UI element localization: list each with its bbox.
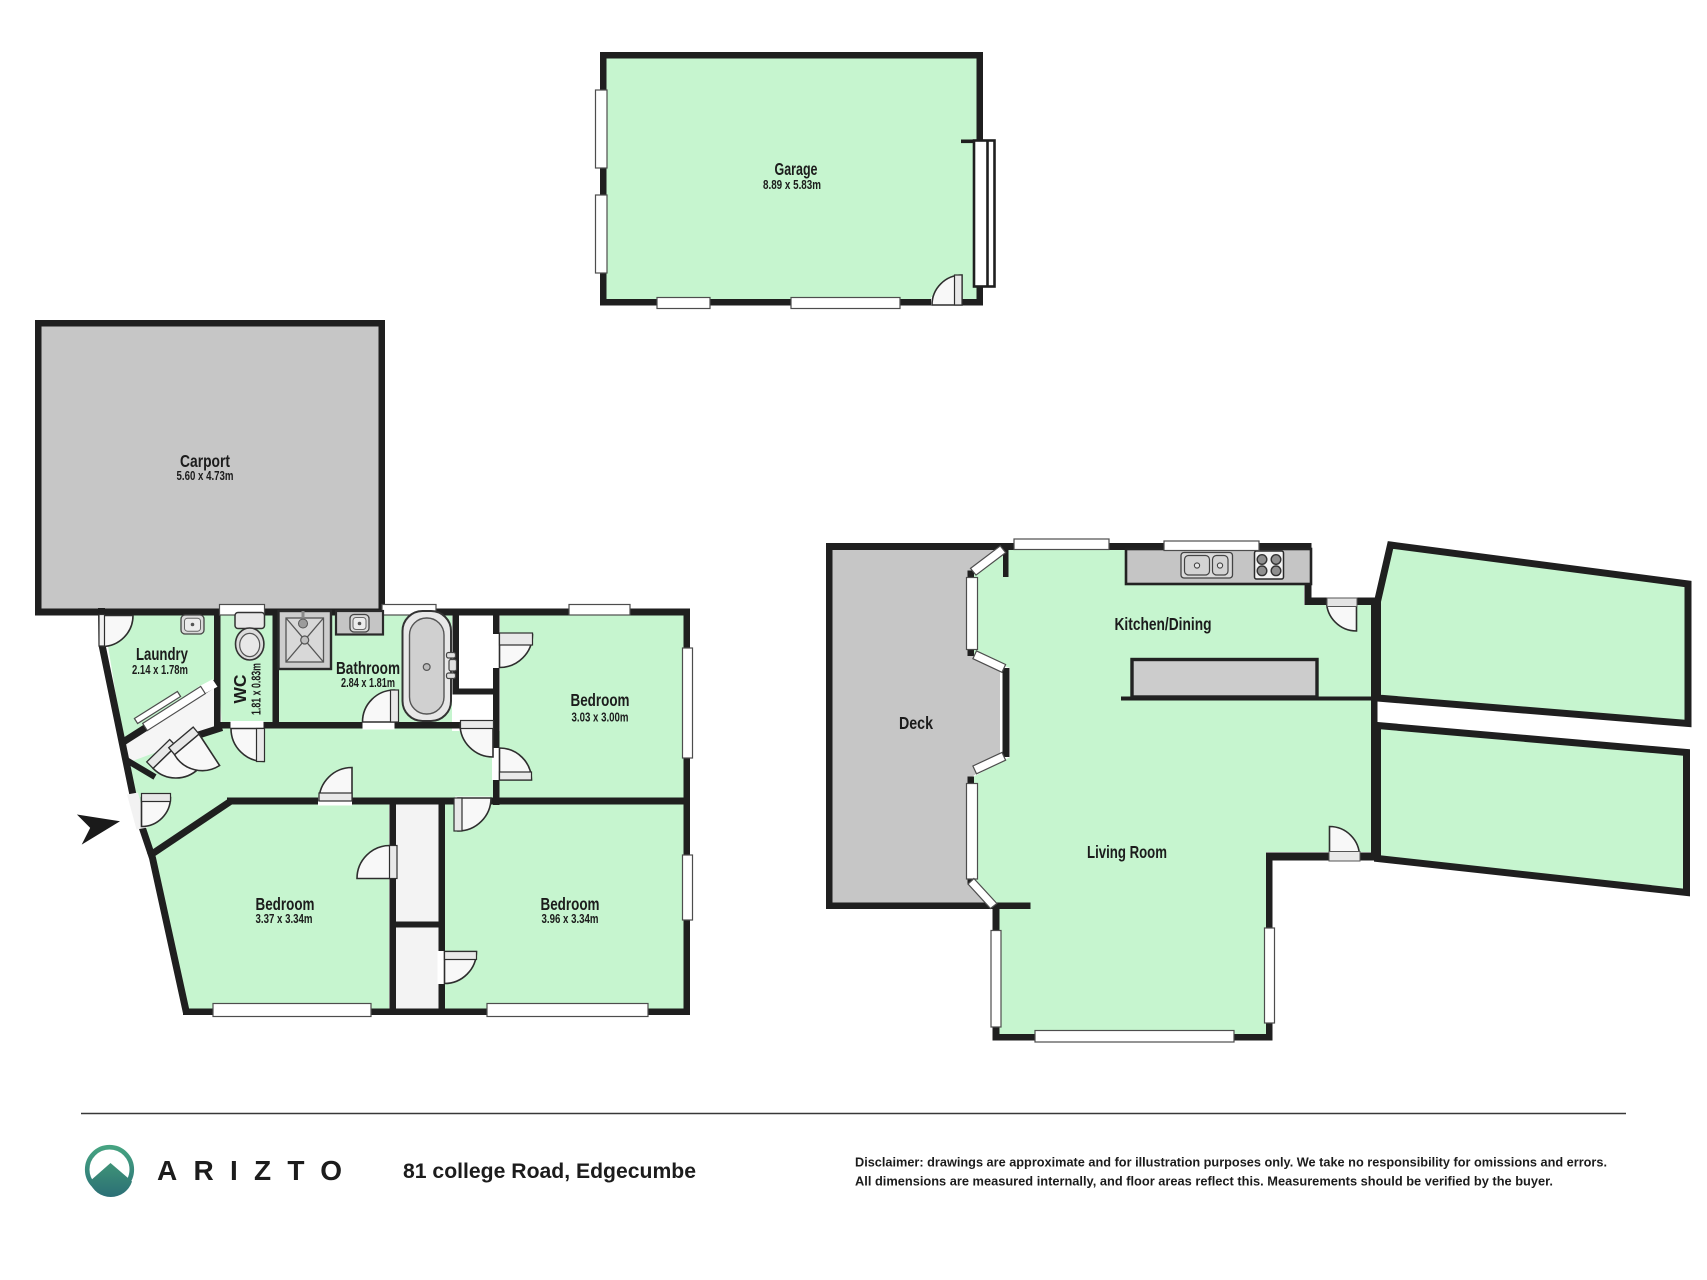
svg-text:2.14 x 1.78m: 2.14 x 1.78m bbox=[132, 662, 188, 677]
svg-text:81 college Road, Edgecumbe: 81 college Road, Edgecumbe bbox=[403, 1160, 696, 1183]
svg-text:3.96 x 3.34m: 3.96 x 3.34m bbox=[542, 911, 599, 926]
svg-text:Disclaimer: drawings are appro: Disclaimer: drawings are approximate and… bbox=[855, 1155, 1607, 1170]
svg-text:5.60 x 4.73m: 5.60 x 4.73m bbox=[177, 468, 234, 483]
svg-text:8.89 x 5.83m: 8.89 x 5.83m bbox=[763, 177, 821, 192]
svg-text:Living Room: Living Room bbox=[1087, 842, 1167, 862]
svg-text:3.37 x 3.34m: 3.37 x 3.34m bbox=[256, 911, 313, 926]
svg-text:Laundry: Laundry bbox=[136, 644, 188, 664]
svg-text:All dimensions are measured in: All dimensions are measured internally, … bbox=[855, 1174, 1553, 1189]
svg-text:Bedroom: Bedroom bbox=[571, 690, 630, 710]
svg-text:2.84 x 1.81m: 2.84 x 1.81m bbox=[341, 675, 395, 690]
svg-text:Deck: Deck bbox=[899, 713, 933, 733]
svg-text:Kitchen/Dining: Kitchen/Dining bbox=[1115, 614, 1212, 634]
svg-text:3.03 x 3.00m: 3.03 x 3.00m bbox=[572, 710, 629, 725]
svg-text:Garage: Garage bbox=[775, 159, 818, 179]
svg-text:1.81 x 0.83m: 1.81 x 0.83m bbox=[249, 663, 264, 715]
svg-text:WC: WC bbox=[230, 674, 250, 703]
